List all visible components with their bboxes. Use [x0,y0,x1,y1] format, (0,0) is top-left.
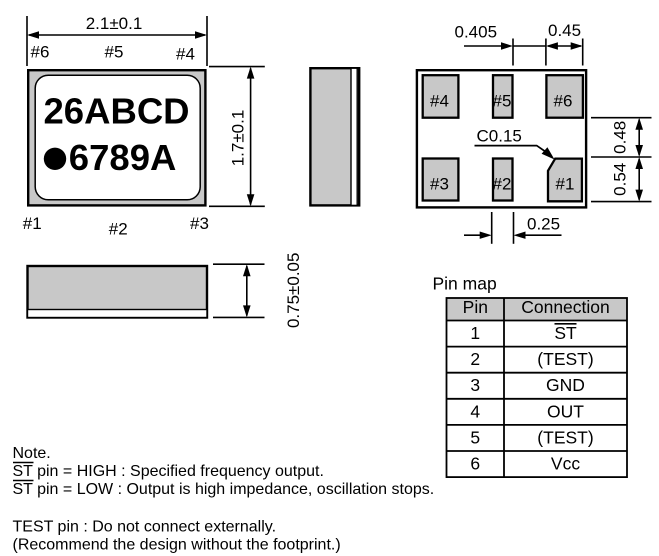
svg-text:3: 3 [470,375,480,395]
svg-text:(TEST): (TEST) [537,427,593,447]
svg-text:2: 2 [470,349,480,369]
svg-text:(TEST): (TEST) [537,349,593,369]
svg-text:#1: #1 [556,175,575,194]
svg-text:6: 6 [470,454,480,474]
svg-text:#5: #5 [493,92,512,111]
svg-text:#6: #6 [554,92,573,111]
svg-text:Pin: Pin [463,297,488,317]
svg-text:(Recommend the design without: (Recommend the design without the footpr… [13,537,341,554]
svg-text:0.54: 0.54 [611,163,630,196]
svg-text:#4: #4 [430,92,449,111]
svg-text:GND: GND [546,375,585,395]
svg-text:0.25: 0.25 [527,215,560,234]
svg-text:ST pin = LOW : Output is high: ST pin = LOW : Output is high impedance,… [13,481,435,498]
svg-text:#2: #2 [109,219,128,238]
svg-text:0.45: 0.45 [548,21,581,40]
svg-text:Vcc: Vcc [551,454,580,474]
svg-text:Pin map: Pin map [433,273,497,293]
svg-text:6789A: 6789A [69,137,177,178]
svg-text:5: 5 [470,427,480,447]
svg-text:0.75±0.05: 0.75±0.05 [284,253,303,329]
svg-text:Note.: Note. [13,445,51,462]
svg-text:ST: ST [554,323,577,343]
svg-text:26ABCD: 26ABCD [44,91,190,132]
svg-text:#2: #2 [493,175,512,194]
svg-text:OUT: OUT [547,401,584,421]
svg-text:C0.15: C0.15 [477,127,522,146]
svg-text:#5: #5 [105,43,124,62]
svg-text:#3: #3 [190,214,209,233]
svg-text:1.7±0.1: 1.7±0.1 [229,110,248,167]
svg-text:TEST pin : Do not connect exte: TEST pin : Do not connect externally. [13,519,277,536]
svg-text:4: 4 [470,401,480,421]
svg-text:Connection: Connection [521,297,610,317]
svg-text:#4: #4 [176,45,195,64]
svg-text:#6: #6 [31,43,50,62]
svg-text:2.1±0.1: 2.1±0.1 [86,14,143,33]
svg-text:#1: #1 [23,214,42,233]
svg-text:#3: #3 [430,175,449,194]
svg-text:1: 1 [470,323,480,343]
svg-text:0.405: 0.405 [455,23,498,42]
svg-text:ST pin = HIGH : Specified freq: ST pin = HIGH : Specified frequency outp… [13,463,324,480]
svg-text:0.48: 0.48 [611,121,630,154]
